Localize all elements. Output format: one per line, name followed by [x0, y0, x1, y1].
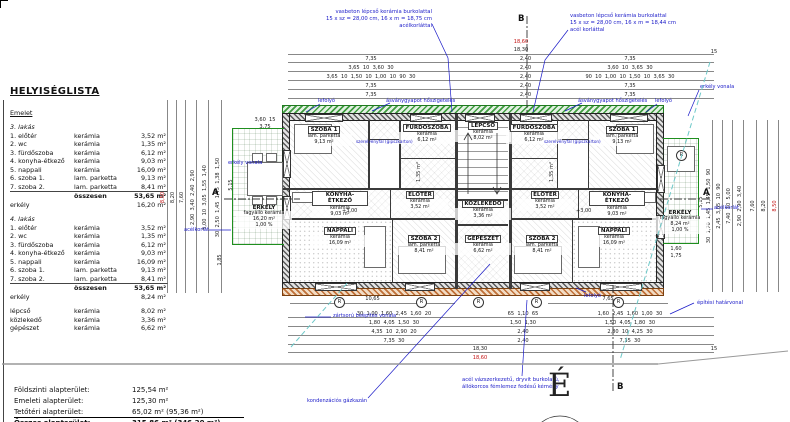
- leader-stair-left: [432, 24, 452, 112]
- leader-drain: [646, 104, 657, 112]
- leader-boiler: [368, 264, 490, 398]
- boundary-line-right: [620, 62, 710, 360]
- leader-insulation: [372, 103, 390, 111]
- leader-stair-right: [533, 30, 568, 112]
- ground-line: [658, 351, 788, 364]
- leader-drain: [576, 288, 586, 292]
- leader-insulation: [565, 103, 582, 111]
- boundary-line-left: [291, 281, 349, 347]
- leader-drain: [306, 104, 320, 112]
- linework-overlay: [0, 0, 790, 422]
- leader-building-line: [670, 303, 694, 314]
- floor-plan-sheet: HELYISÉGLISTA Emelet 3. lakás 1. előtérk…: [0, 0, 790, 422]
- compass-circle: [530, 416, 590, 422]
